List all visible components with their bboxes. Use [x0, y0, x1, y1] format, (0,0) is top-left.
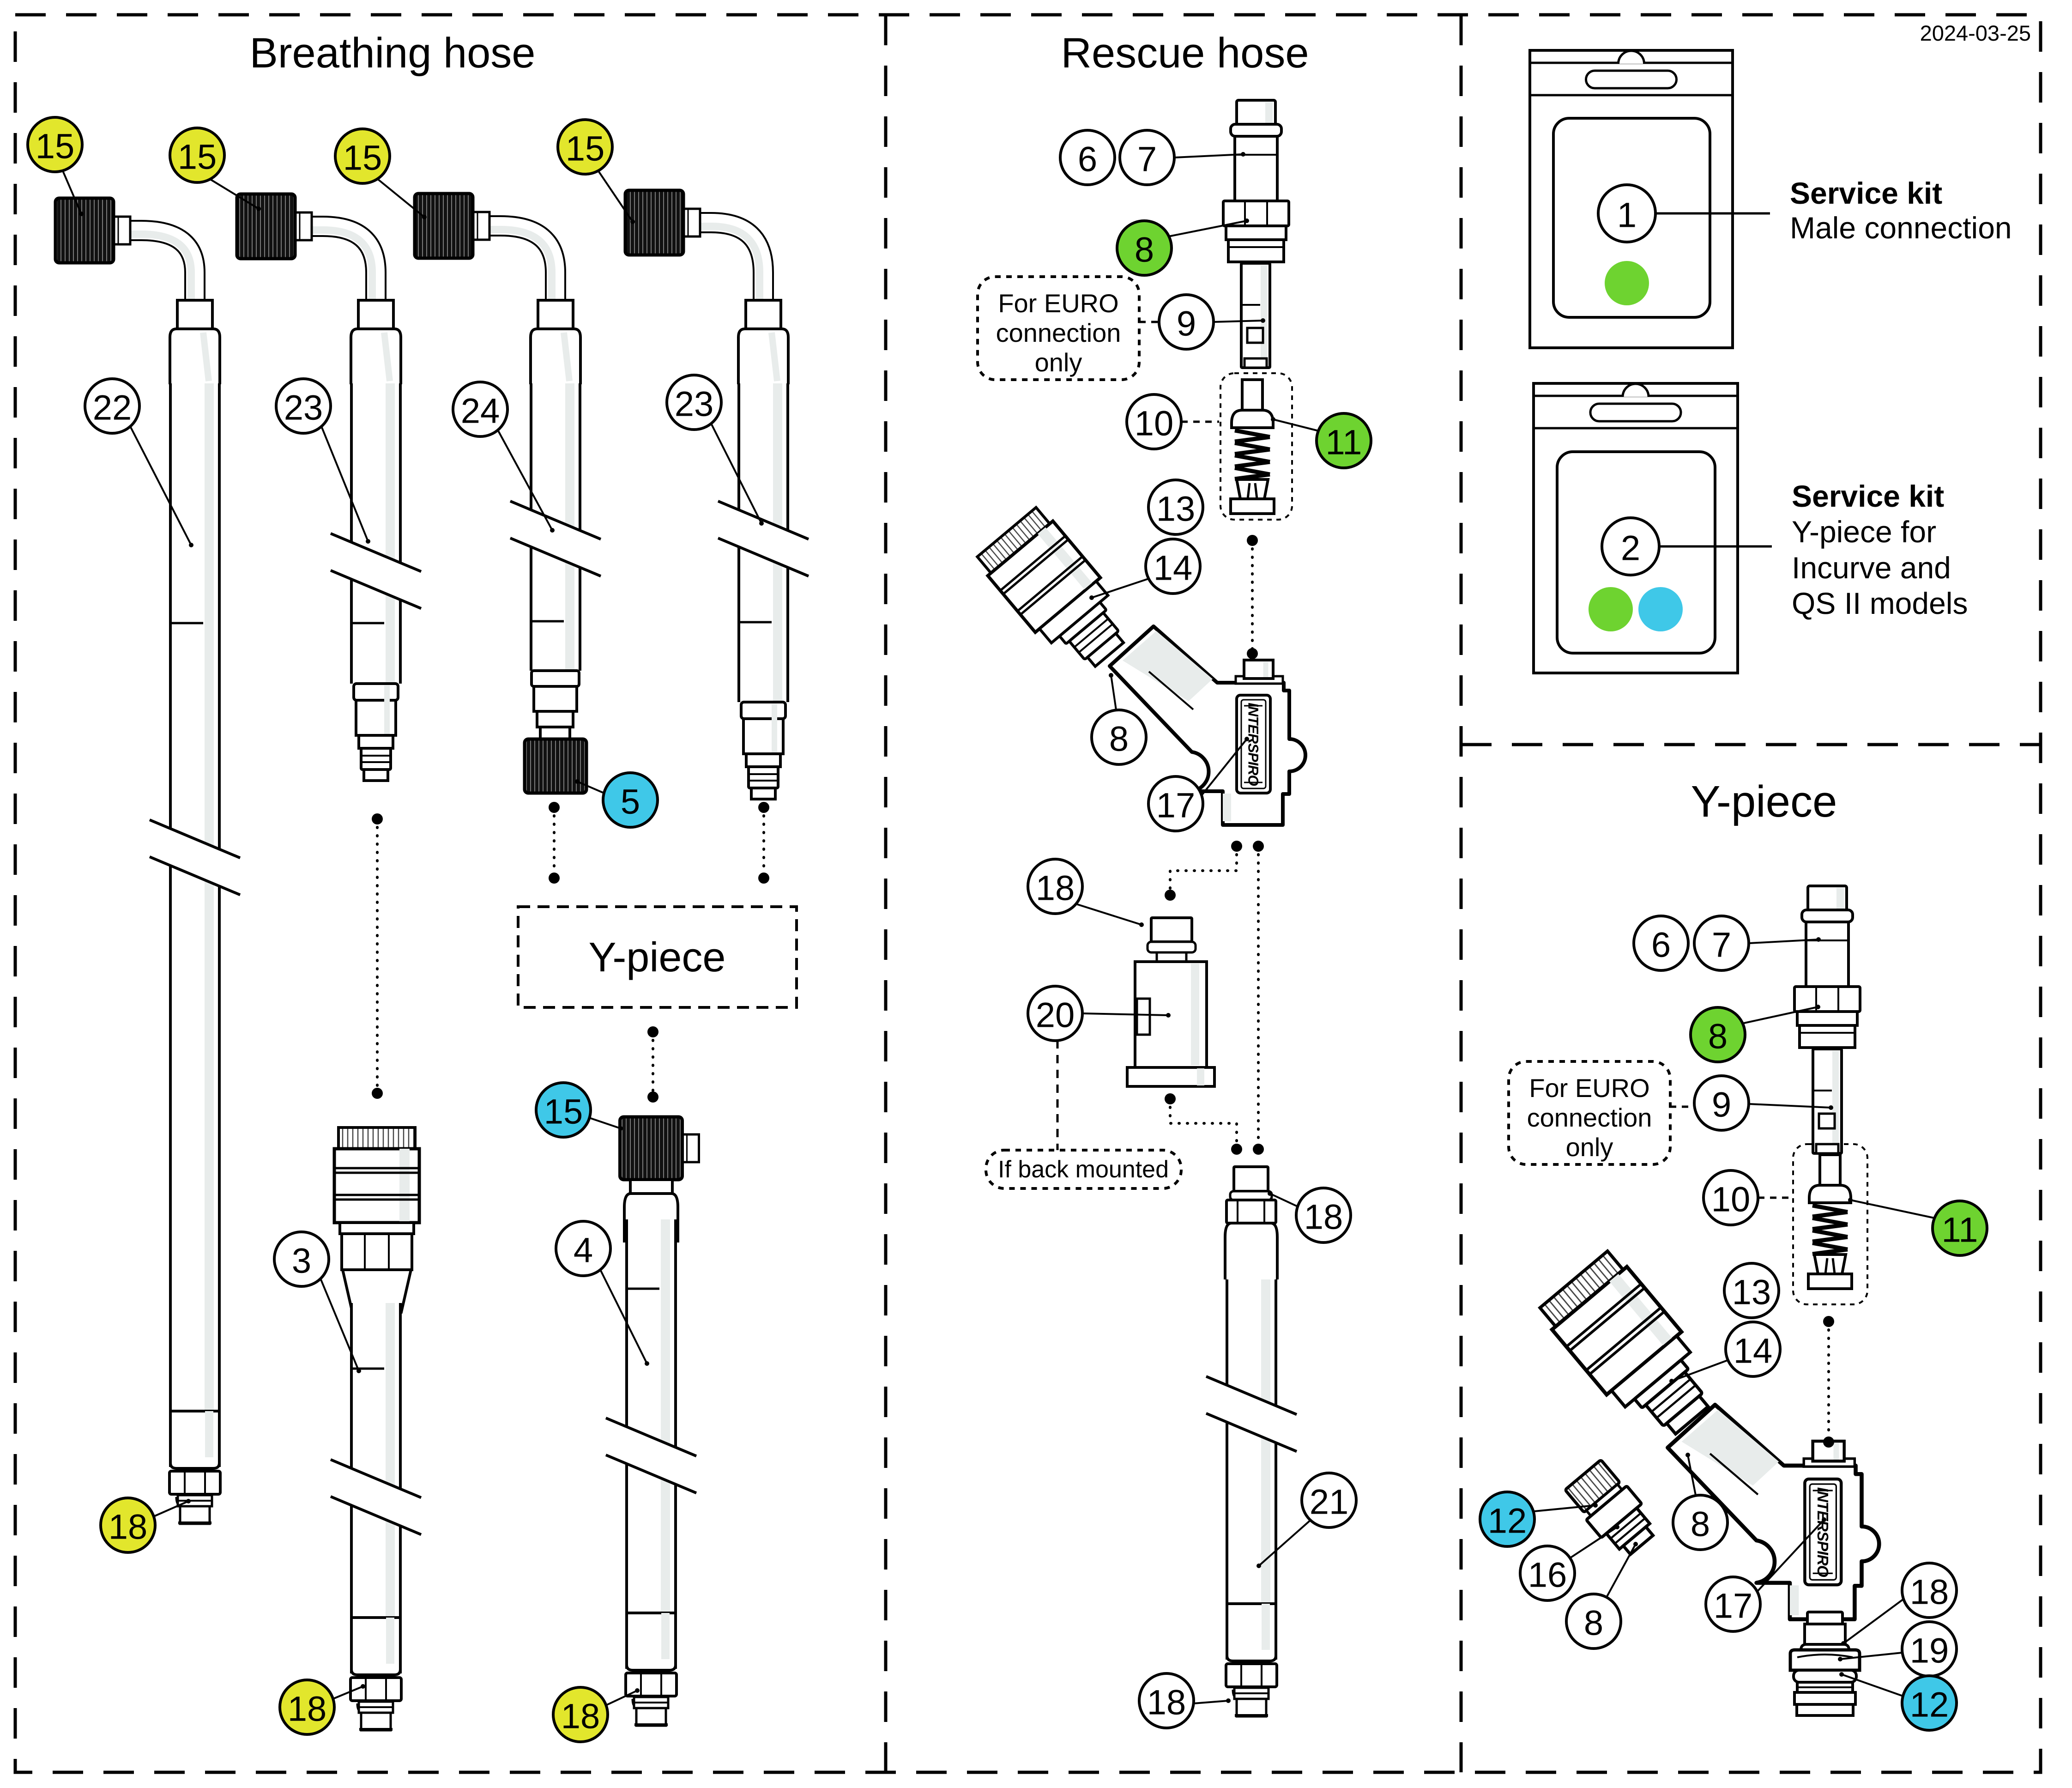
svg-text:Service kit: Service kit	[1792, 479, 1944, 513]
svg-text:Breathing hose: Breathing hose	[250, 30, 536, 77]
svg-text:only: only	[1566, 1133, 1613, 1162]
svg-text:4: 4	[574, 1231, 593, 1270]
svg-text:connection: connection	[1527, 1103, 1652, 1132]
svg-text:6: 6	[1651, 926, 1671, 965]
svg-text:15: 15	[544, 1092, 583, 1132]
svg-text:15: 15	[566, 129, 605, 169]
svg-text:12: 12	[1488, 1502, 1527, 1541]
svg-text:13: 13	[1732, 1273, 1771, 1312]
svg-text:2024-03-25: 2024-03-25	[1920, 21, 2031, 45]
svg-text:connection: connection	[996, 318, 1121, 347]
svg-text:Rescue hose: Rescue hose	[1061, 30, 1309, 77]
svg-text:18: 18	[1036, 869, 1075, 908]
svg-text:17: 17	[1156, 786, 1196, 825]
svg-text:8: 8	[1708, 1017, 1728, 1056]
svg-text:Y-piece: Y-piece	[589, 934, 726, 981]
svg-text:9: 9	[1177, 304, 1196, 344]
svg-text:21: 21	[1310, 1483, 1349, 1522]
svg-text:INTERSPIRO: INTERSPIRO	[1245, 703, 1262, 786]
svg-text:11: 11	[1326, 423, 1362, 462]
svg-text:9: 9	[1712, 1085, 1731, 1125]
svg-text:16: 16	[1528, 1556, 1567, 1595]
svg-text:12: 12	[1910, 1685, 1949, 1725]
svg-text:8: 8	[1584, 1604, 1603, 1643]
svg-text:Y-piece for: Y-piece for	[1792, 515, 1936, 549]
svg-text:18: 18	[1147, 1683, 1186, 1722]
svg-text:7: 7	[1712, 926, 1731, 965]
svg-text:6: 6	[1078, 140, 1097, 179]
svg-text:23: 23	[284, 388, 323, 428]
svg-text:14: 14	[1154, 549, 1193, 588]
svg-text:8: 8	[1691, 1505, 1710, 1544]
svg-text:13: 13	[1156, 490, 1196, 529]
svg-text:7: 7	[1137, 140, 1157, 179]
svg-text:15: 15	[178, 138, 217, 177]
svg-text:For EURO: For EURO	[998, 289, 1118, 318]
svg-text:11: 11	[1942, 1211, 1978, 1250]
svg-text:18: 18	[1910, 1573, 1949, 1612]
svg-text:18: 18	[1304, 1198, 1343, 1237]
svg-text:10: 10	[1135, 404, 1174, 443]
svg-text:8: 8	[1135, 230, 1154, 270]
svg-text:Male connection: Male connection	[1790, 211, 2012, 245]
svg-text:10: 10	[1711, 1180, 1751, 1219]
svg-text:22: 22	[93, 388, 132, 428]
svg-text:17: 17	[1714, 1587, 1753, 1626]
svg-text:Incurve and: Incurve and	[1792, 551, 1951, 585]
svg-text:20: 20	[1036, 996, 1075, 1035]
svg-text:1: 1	[1617, 196, 1637, 235]
svg-text:QS II models: QS II models	[1792, 586, 1968, 620]
svg-text:15: 15	[36, 127, 75, 166]
svg-text:18: 18	[288, 1690, 327, 1729]
svg-text:8: 8	[1109, 720, 1129, 759]
svg-text:23: 23	[675, 385, 714, 424]
svg-text:5: 5	[621, 782, 640, 822]
svg-text:only: only	[1035, 348, 1082, 377]
svg-text:24: 24	[461, 392, 500, 431]
svg-text:Y-piece: Y-piece	[1691, 777, 1837, 826]
svg-text:INTERSPIRO: INTERSPIRO	[1814, 1487, 1831, 1577]
svg-text:19: 19	[1910, 1631, 1949, 1671]
svg-text:18: 18	[561, 1697, 600, 1736]
svg-text:Service kit: Service kit	[1790, 176, 1942, 210]
svg-text:15: 15	[343, 139, 382, 178]
svg-text:2: 2	[1621, 529, 1640, 568]
svg-text:18: 18	[109, 1508, 148, 1547]
svg-text:3: 3	[292, 1242, 311, 1281]
svg-text:14: 14	[1734, 1332, 1773, 1371]
svg-text:For EURO: For EURO	[1529, 1073, 1649, 1103]
svg-text:If back mounted: If back mounted	[998, 1156, 1169, 1183]
